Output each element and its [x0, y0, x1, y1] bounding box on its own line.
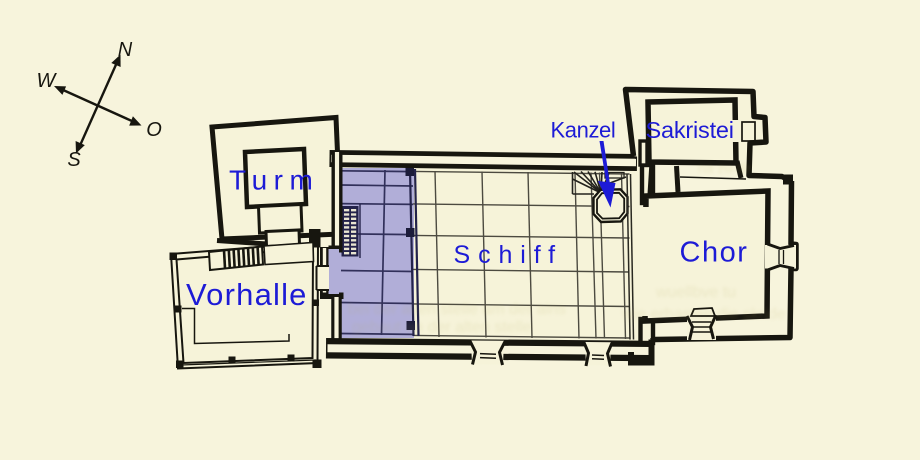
svg-text:N: N [118, 39, 133, 61]
svg-text:S: S [67, 149, 81, 171]
svg-text:Kanzel: Kanzel [551, 118, 616, 143]
svg-text:wuellbve tu: wuellbve tu [655, 284, 736, 301]
svg-text:W: W [37, 70, 58, 92]
svg-text:Chor: Chor [680, 237, 749, 269]
svg-text:na zu dir: na zu dir [698, 160, 752, 176]
svg-text:gebaut an der alten stelle: gebaut an der alten stelle [352, 319, 532, 336]
svg-text:Schiff: Schiff [454, 241, 563, 269]
svg-text:Vorhalle: Vorhalle [186, 277, 308, 312]
svg-text:O: O [146, 119, 162, 141]
svg-text:Sakristei: Sakristei [646, 117, 734, 143]
svg-text:wie erhasten die skride: wie erhasten die skride [621, 306, 786, 323]
svg-text:Turm: Turm [229, 165, 319, 196]
svg-text:bei der alten stelle am der ai: bei der alten stelle am der ains [348, 301, 566, 318]
